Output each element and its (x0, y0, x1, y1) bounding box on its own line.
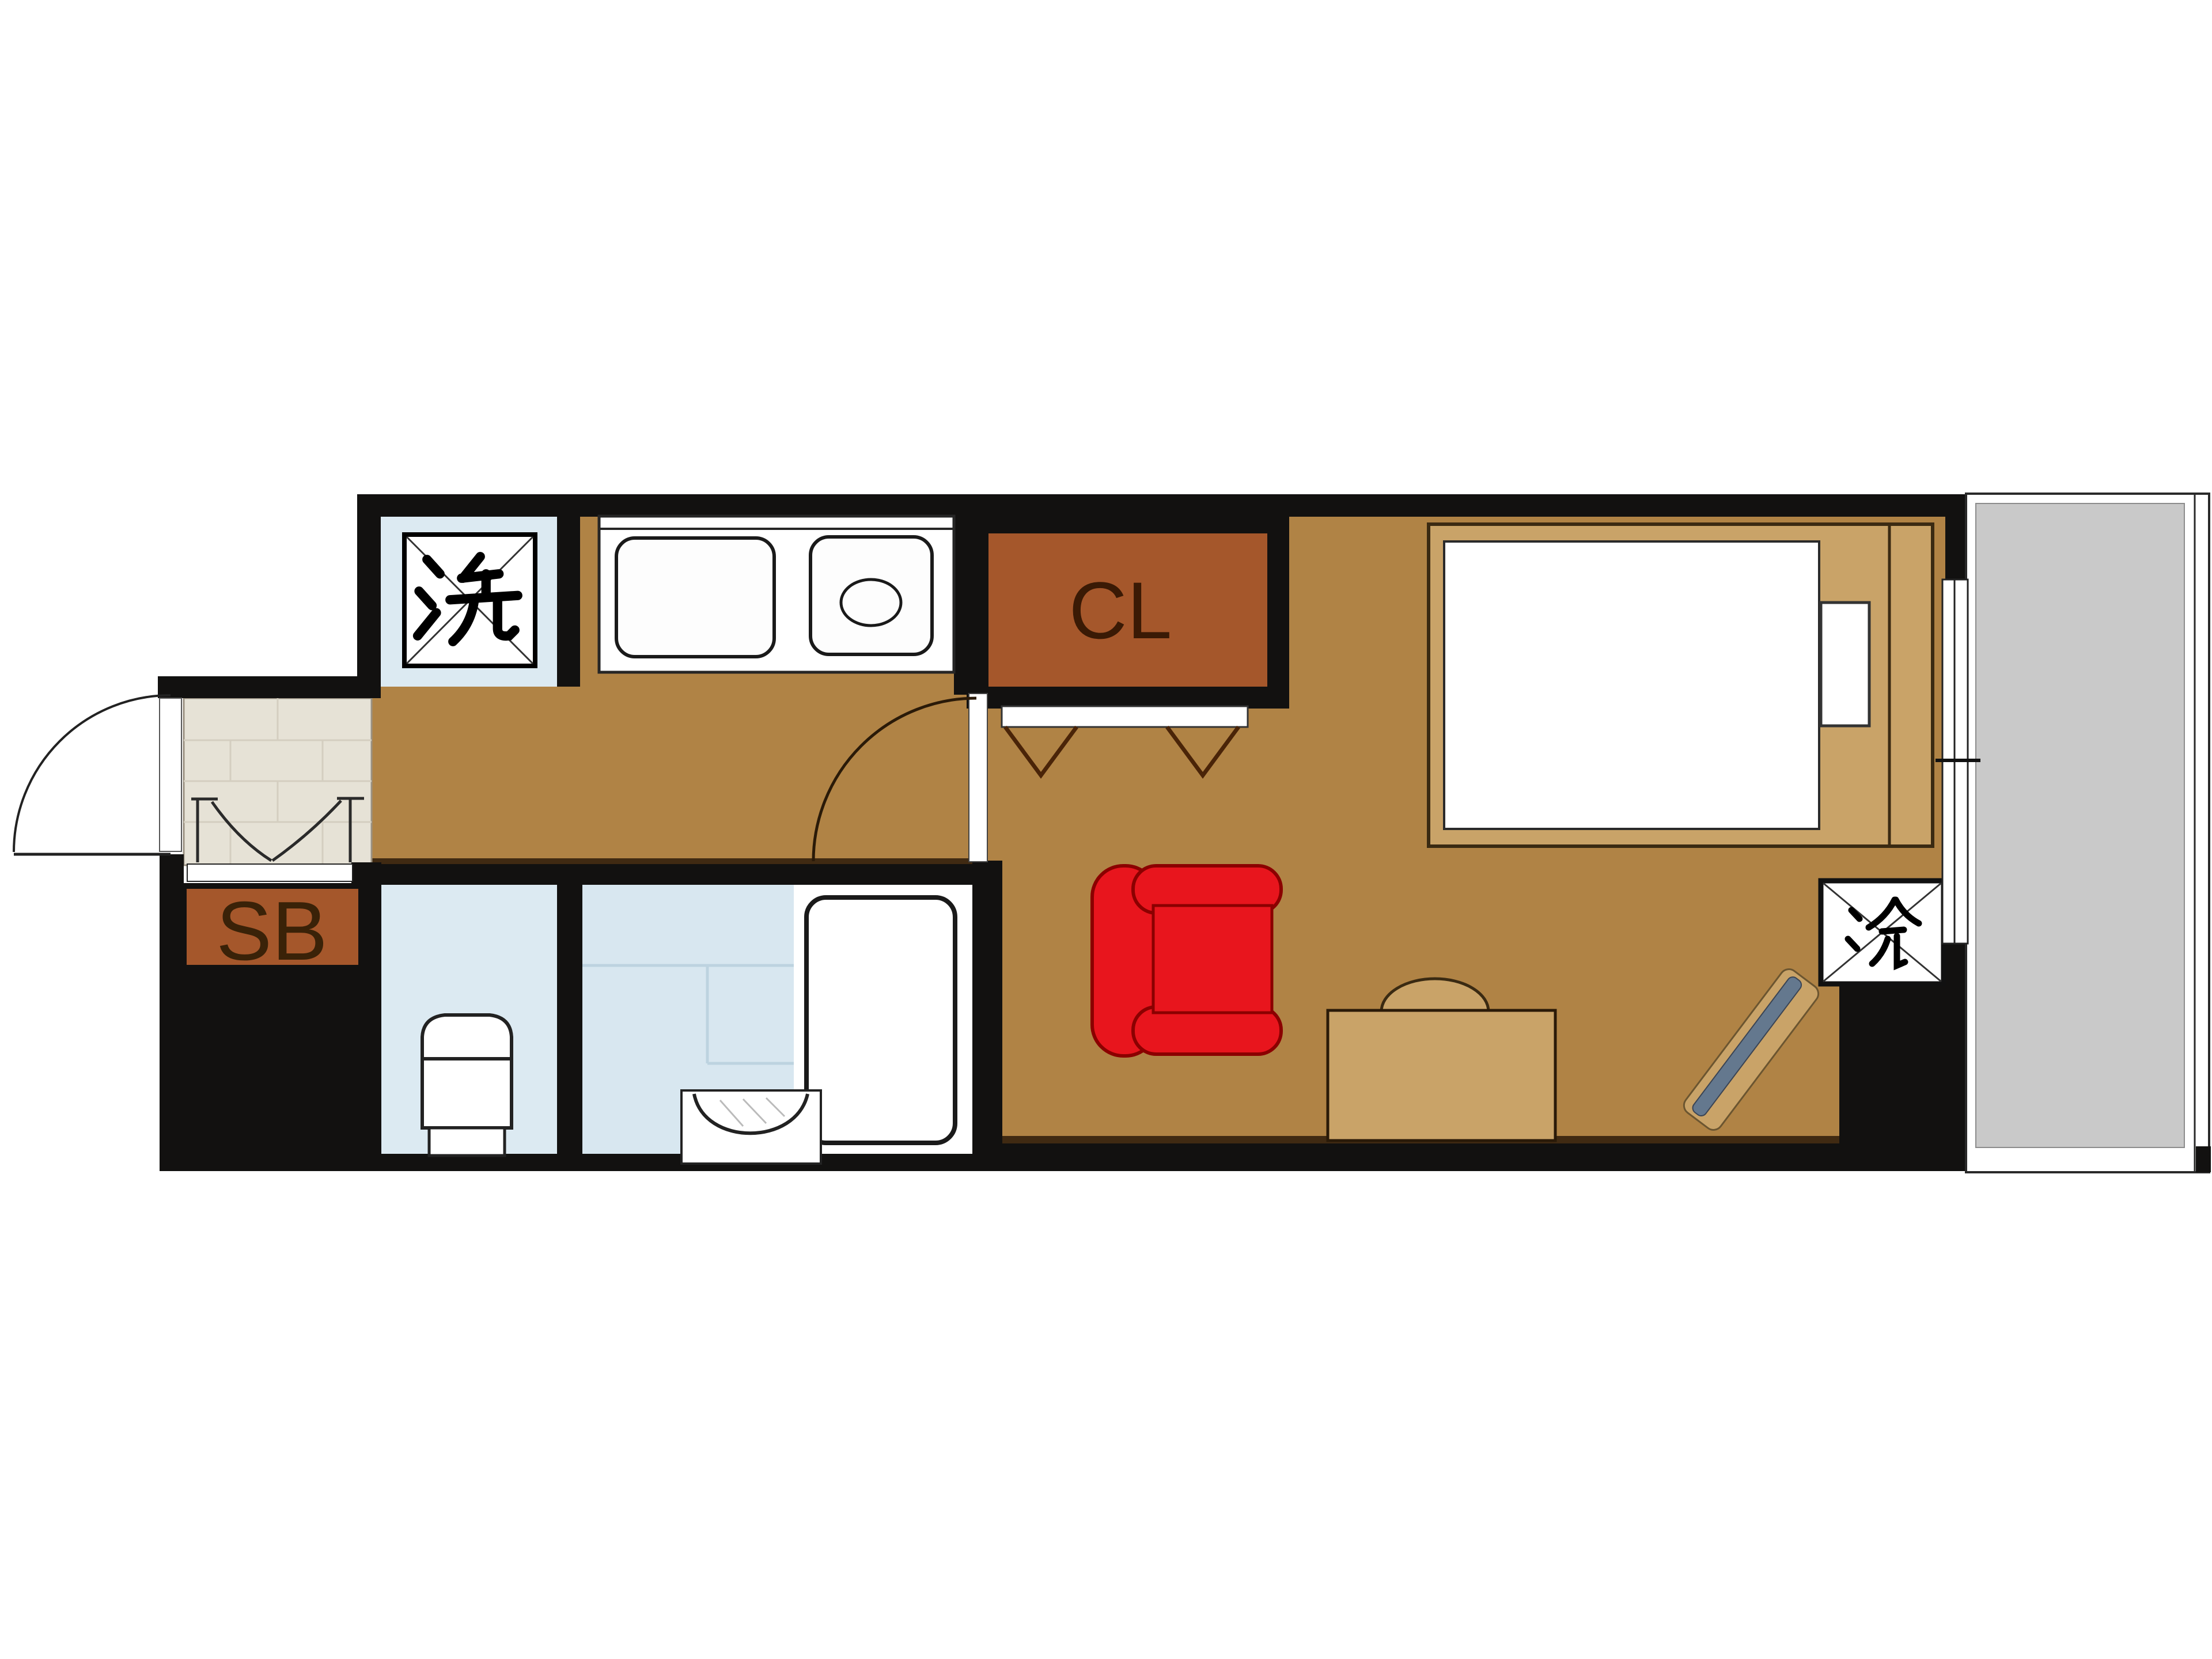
svg-text:SB: SB (216, 884, 327, 978)
svg-text:CL: CL (1069, 565, 1172, 656)
